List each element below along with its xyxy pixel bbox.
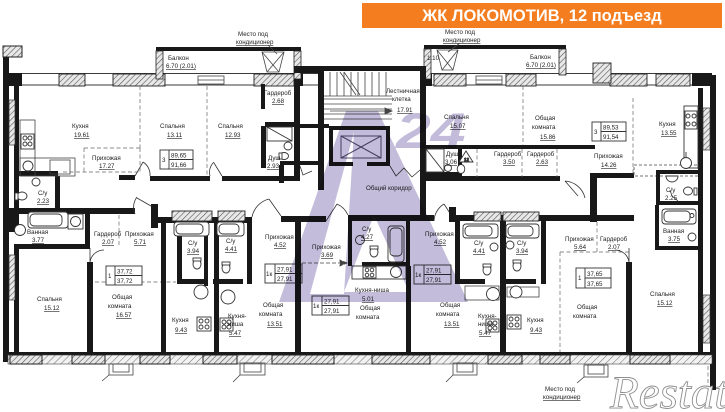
svg-text:ниша: ниша [478,321,494,328]
svg-text:кондиционер: кондиционер [543,394,581,401]
svg-text:2.07: 2.07 [608,244,621,251]
svg-text:С/у: С/у [226,238,236,245]
svg-text:3.50: 3.50 [503,159,516,166]
svg-text:3.75: 3.75 [668,236,681,243]
svg-text:Место под: Место под [545,386,575,393]
svg-text:Кухня: Кухня [659,121,676,128]
svg-text:кондиционер: кондиционер [443,37,481,44]
svg-text:5.71: 5.71 [134,239,147,246]
svg-text:6.70 (2.01): 6.70 (2.01) [166,63,196,70]
svg-text:4.41: 4.41 [473,248,486,255]
svg-text:Прихожая: Прихожая [265,234,294,241]
svg-text:17.27: 17.27 [99,163,115,170]
svg-text:Restate: Restate [609,367,725,412]
svg-text:2.93: 2.93 [267,163,280,170]
svg-text:Гардероб: Гардероб [94,231,122,238]
svg-text:Общая: Общая [360,305,380,312]
svg-text:4.41: 4.41 [225,246,238,253]
svg-text:3.77: 3.77 [32,237,45,244]
svg-text:2.68: 2.68 [272,98,285,105]
svg-text:1к: 1к [266,271,272,278]
svg-text:Гардероб: Гардероб [600,236,628,243]
svg-text:Лестничная: Лестничная [386,88,420,95]
svg-text:Кухня: Кухня [72,123,89,130]
svg-text:Балкон: Балкон [530,54,551,61]
svg-text:Ванная: Ванная [663,228,684,235]
svg-text:Общая: Общая [577,304,597,311]
svg-text:3.94: 3.94 [516,248,529,255]
svg-text:91,66: 91,66 [171,162,187,169]
svg-text:ниша: ниша [228,321,244,328]
svg-text:Кухня: Кухня [527,317,544,324]
svg-text:Кухня: Кухня [172,317,189,324]
svg-text:5.47: 5.47 [479,330,492,337]
svg-text:19.61: 19.61 [74,132,90,139]
svg-text:15.86: 15.86 [540,134,556,141]
svg-text:Место под: Место под [238,31,268,38]
svg-text:Место под: Место под [445,29,475,36]
svg-text:2.63: 2.63 [536,159,549,166]
svg-text:13.51: 13.51 [444,321,460,328]
svg-text:комната: комната [108,303,132,310]
svg-text:14.26: 14.26 [601,162,617,169]
svg-text:комната: комната [573,313,597,320]
svg-text:2.25: 2.25 [665,195,678,202]
svg-text:5.47: 5.47 [229,330,242,337]
svg-text:Прихожая: Прихожая [565,236,594,243]
svg-text:1: 1 [578,275,582,282]
svg-text:89,65: 89,65 [171,153,187,160]
svg-text:15.12: 15.12 [44,305,60,312]
svg-text:Спальня: Спальня [218,123,243,130]
svg-text:1к: 1к [313,303,319,310]
svg-text:3.69: 3.69 [321,252,334,259]
svg-text:24: 24 [395,103,466,159]
svg-text:37,65: 37,65 [587,271,603,278]
svg-text:ЖК ЛОКОМОТИВ, 12 подъезд: ЖК ЛОКОМОТИВ, 12 подъезд [421,7,662,25]
svg-text:Душ: Душ [268,155,280,162]
svg-text:3: 3 [594,129,598,136]
svg-text:Прихожая: Прихожая [594,153,623,160]
svg-text:3.06: 3.06 [445,159,458,166]
svg-text:9.43: 9.43 [175,327,188,334]
svg-text:3.94: 3.94 [187,248,200,255]
svg-text:13.11: 13.11 [167,132,183,139]
svg-text:С/у: С/у [474,240,484,247]
svg-text:Общая: Общая [112,294,132,301]
svg-text:37,72: 37,72 [117,278,133,285]
svg-text:комната: комната [436,311,460,318]
svg-text:12.93: 12.93 [225,132,241,139]
svg-text:Спальня: Спальня [160,123,185,130]
svg-text:13.51: 13.51 [267,321,283,328]
svg-text:6.70 (2.01): 6.70 (2.01) [526,62,556,69]
svg-text:С/у: С/у [188,240,198,247]
svg-text:Гардероб: Гардероб [494,151,522,158]
svg-text:13.55: 13.55 [661,130,677,137]
svg-text:комната: комната [356,314,380,321]
svg-text:Общая: Общая [535,115,555,122]
svg-text:2.07: 2.07 [102,239,115,246]
svg-text:Гардероб: Гардероб [264,90,292,97]
svg-text:С/у: С/у [517,240,527,247]
svg-text:3: 3 [162,157,166,164]
svg-text:Прихожая: Прихожая [125,231,154,238]
svg-text:Спальня: Спальня [650,291,675,298]
svg-text:С/у: С/у [38,190,48,197]
svg-text:комната: комната [532,124,556,131]
svg-text:С/у: С/у [666,187,676,194]
svg-text:27,91: 27,91 [324,308,340,315]
svg-text:Спальня: Спальня [37,296,62,303]
svg-text:5.64: 5.64 [574,244,587,251]
svg-text:Ванная: Ванная [27,229,48,236]
svg-text:клетка: клетка [392,96,411,103]
svg-text:91,54: 91,54 [603,134,619,141]
svg-text:1: 1 [108,273,112,280]
svg-text:Балкон: Балкон [168,55,189,62]
svg-text:Гардероб: Гардероб [527,151,555,158]
svg-text:Кухня-: Кухня- [228,313,247,320]
svg-text:37,72: 37,72 [117,269,133,276]
svg-text:Прихожая: Прихожая [92,155,121,162]
svg-text:15.12: 15.12 [657,300,673,307]
svg-text:Кухня-: Кухня- [478,313,497,320]
svg-text:2.23: 2.23 [37,198,50,205]
svg-text:9.43: 9.43 [530,327,543,334]
svg-text:4.52: 4.52 [274,242,287,249]
svg-text:комната: комната [259,311,283,318]
svg-text:Общая: Общая [263,302,283,309]
svg-text:16.57: 16.57 [116,312,132,319]
svg-text:89,53: 89,53 [603,125,619,132]
svg-text:1.10: 1.10 [427,55,440,62]
svg-text:37,65: 37,65 [587,281,603,288]
svg-text:Общая: Общая [440,302,460,309]
